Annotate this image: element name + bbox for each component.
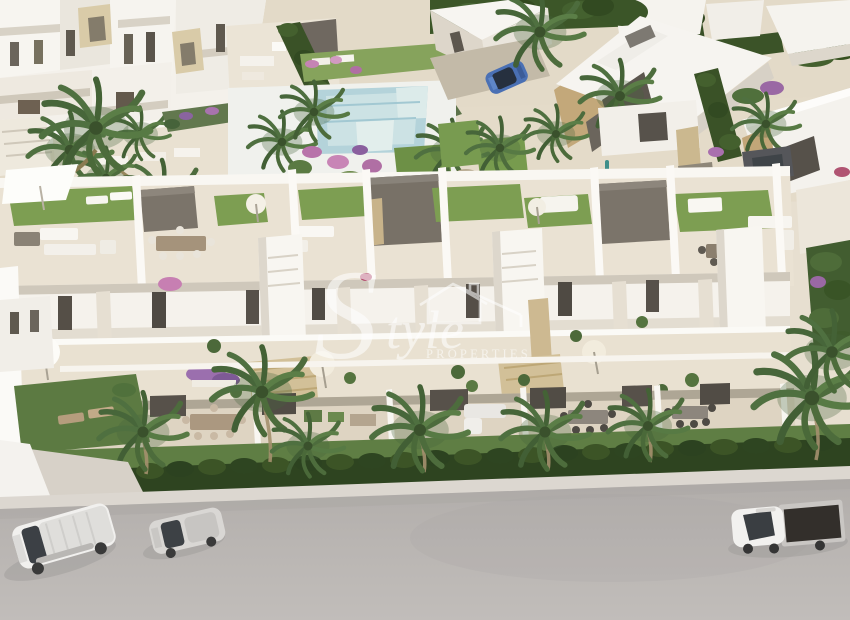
svg-text:S: S [314,244,378,386]
svg-text:PROPERTIES: PROPERTIES [426,347,531,361]
